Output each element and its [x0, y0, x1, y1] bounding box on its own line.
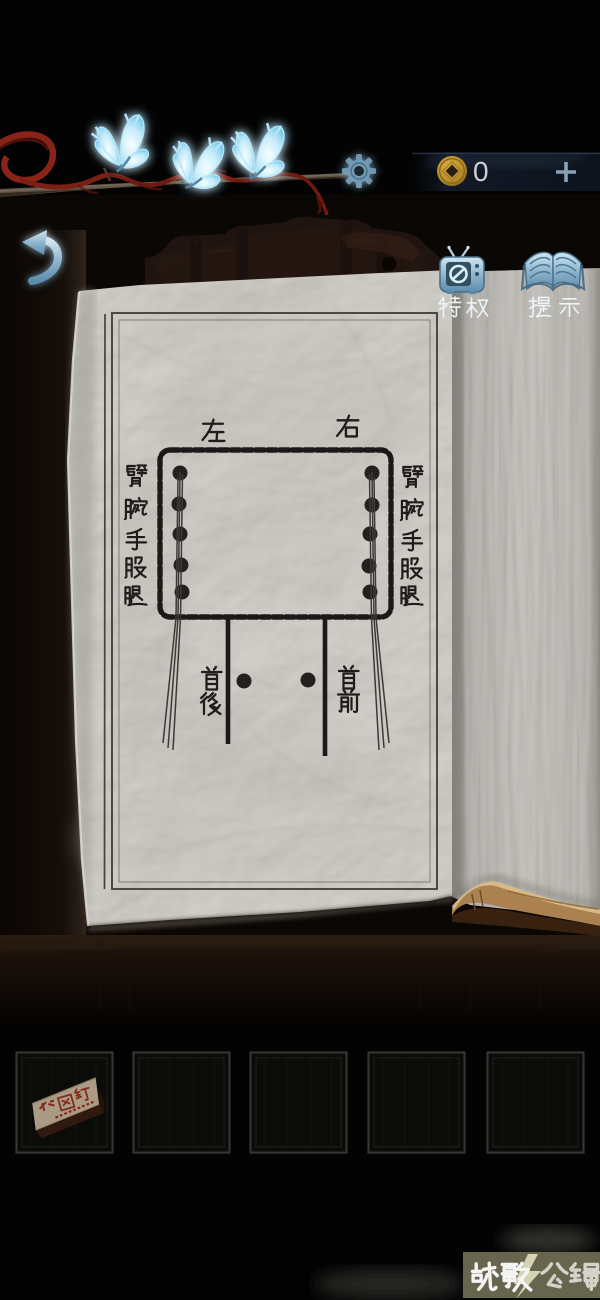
svg-text:0: 0: [473, 156, 489, 187]
